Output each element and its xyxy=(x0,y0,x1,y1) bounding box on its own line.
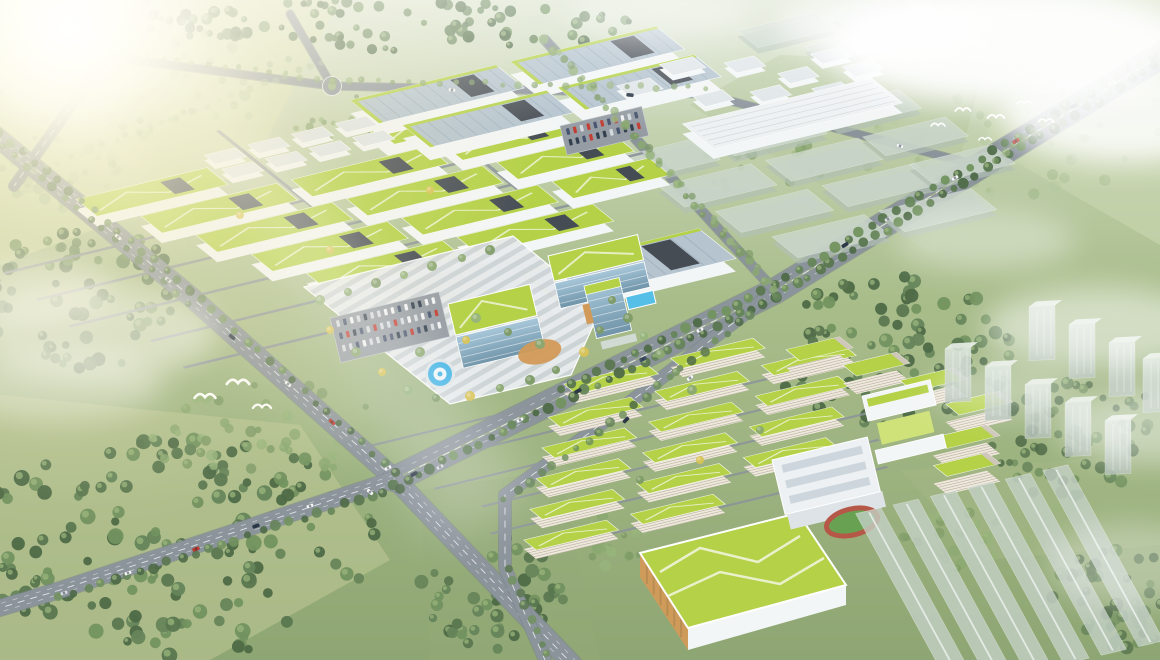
sun-flare xyxy=(0,0,1160,660)
rendering-canvas xyxy=(0,0,1160,660)
top-haze xyxy=(0,0,1160,130)
aerial-masterplan-rendering xyxy=(0,0,1160,660)
